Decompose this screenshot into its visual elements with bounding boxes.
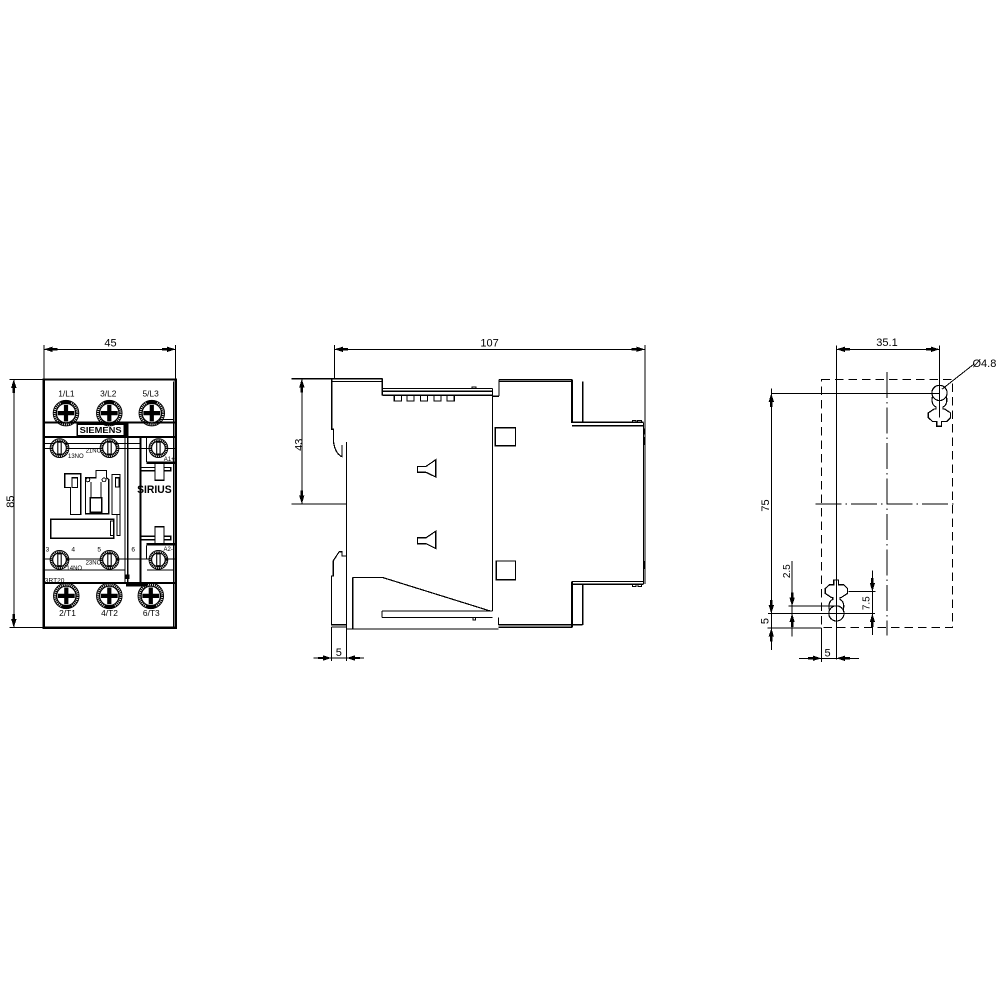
svg-text:43: 43 bbox=[293, 439, 305, 451]
svg-text:4/T2: 4/T2 bbox=[101, 608, 118, 618]
svg-text:107: 107 bbox=[480, 337, 498, 349]
svg-text:6/T3: 6/T3 bbox=[143, 608, 160, 618]
svg-text:13NO: 13NO bbox=[68, 454, 84, 460]
svg-text:A1+: A1+ bbox=[164, 457, 175, 463]
svg-text:2/T1: 2/T1 bbox=[59, 608, 76, 618]
svg-text:Ø4.8: Ø4.8 bbox=[973, 358, 997, 370]
svg-text:5: 5 bbox=[97, 547, 101, 554]
svg-text:3/L2: 3/L2 bbox=[100, 389, 117, 399]
svg-text:21NC: 21NC bbox=[86, 449, 102, 455]
svg-text:85: 85 bbox=[5, 495, 17, 507]
svg-text:4: 4 bbox=[71, 547, 75, 554]
svg-text:14NO: 14NO bbox=[66, 566, 82, 572]
svg-text:A2-: A2- bbox=[164, 547, 173, 553]
svg-text:5/L3: 5/L3 bbox=[142, 389, 159, 399]
svg-text:2.5: 2.5 bbox=[782, 564, 793, 578]
svg-text:6: 6 bbox=[131, 547, 135, 554]
svg-text:23NC: 23NC bbox=[86, 561, 102, 567]
svg-text:SIRIUS: SIRIUS bbox=[137, 484, 172, 496]
svg-text:5: 5 bbox=[824, 647, 830, 659]
svg-text:1/L1: 1/L1 bbox=[58, 389, 75, 399]
svg-text:45: 45 bbox=[104, 337, 116, 349]
svg-text:3: 3 bbox=[46, 547, 50, 554]
svg-text:5: 5 bbox=[336, 647, 342, 659]
svg-text:75: 75 bbox=[760, 499, 772, 511]
svg-text:35.1: 35.1 bbox=[876, 337, 897, 349]
svg-text:SIEMENS: SIEMENS bbox=[80, 425, 122, 435]
svg-text:5: 5 bbox=[759, 618, 771, 624]
svg-text:7.5: 7.5 bbox=[862, 596, 873, 610]
